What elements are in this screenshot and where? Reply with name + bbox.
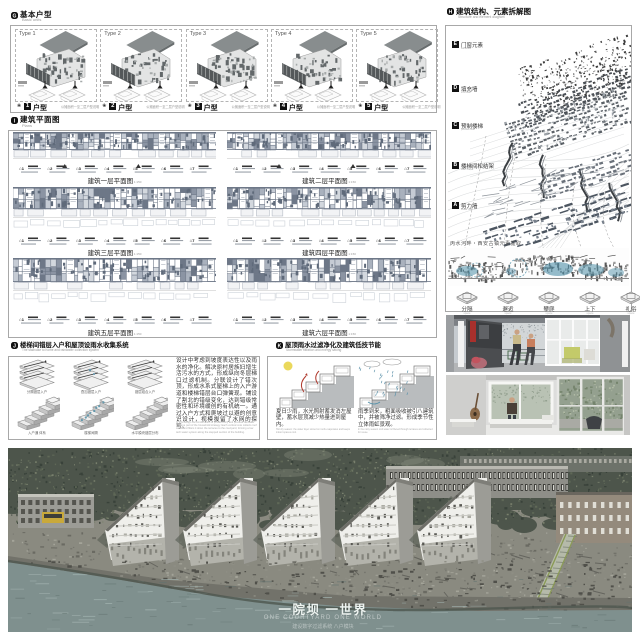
svg-text:G: G: [13, 13, 17, 19]
svg-text:⌂3: ⌂3: [76, 238, 82, 243]
svg-text:⌂1: ⌂1: [233, 238, 239, 243]
svg-text:⌂6: ⌂6: [161, 317, 167, 322]
svg-text:⌂3: ⌂3: [76, 317, 82, 322]
svg-text:H: H: [449, 9, 453, 15]
svg-text:⌂5: ⌂5: [133, 238, 139, 243]
svg-text:⌂6: ⌂6: [376, 166, 382, 171]
svg-text:⌂4: ⌂4: [319, 238, 325, 243]
svg-text:⌂5: ⌂5: [133, 317, 139, 322]
svg-text:⌂5: ⌂5: [347, 317, 353, 322]
svg-text:⌂2: ⌂2: [262, 317, 268, 322]
svg-text:J: J: [13, 343, 16, 349]
svg-text:⌂3: ⌂3: [290, 317, 296, 322]
svg-text:⌂2: ⌂2: [262, 238, 268, 243]
svg-text:⌂2: ⌂2: [262, 166, 268, 171]
svg-text:⌂6: ⌂6: [376, 317, 382, 322]
svg-text:K: K: [278, 343, 282, 349]
svg-text:⌂4: ⌂4: [319, 317, 325, 322]
svg-text:⌂4: ⌂4: [104, 238, 110, 243]
svg-text:⌂7: ⌂7: [404, 166, 410, 171]
svg-text:⌂7: ⌂7: [404, 317, 410, 322]
svg-text:⌂6: ⌂6: [376, 238, 382, 243]
svg-text:⌂3: ⌂3: [290, 166, 296, 171]
svg-text:⌂7: ⌂7: [404, 238, 410, 243]
svg-text:⌂6: ⌂6: [161, 238, 167, 243]
svg-text:⌂7: ⌂7: [190, 317, 196, 322]
svg-text:⌂2: ⌂2: [47, 317, 53, 322]
svg-text:⌂1: ⌂1: [19, 166, 25, 171]
svg-text:⌂4: ⌂4: [104, 317, 110, 322]
svg-text:⌂2: ⌂2: [47, 166, 53, 171]
svg-text:⌂7: ⌂7: [190, 238, 196, 243]
svg-text:⌂6: ⌂6: [161, 166, 167, 171]
svg-text:⌂4: ⌂4: [104, 166, 110, 171]
svg-text:⌂1: ⌂1: [19, 317, 25, 322]
svg-text:⌂1: ⌂1: [233, 317, 239, 322]
svg-text:⌂3: ⌂3: [290, 238, 296, 243]
svg-text:⌂5: ⌂5: [347, 238, 353, 243]
svg-text:⌂1: ⌂1: [19, 238, 25, 243]
svg-text:⌂3: ⌂3: [76, 166, 82, 171]
svg-text:⌂7: ⌂7: [190, 166, 196, 171]
svg-text:⌂4: ⌂4: [319, 166, 325, 171]
svg-text:⌂1: ⌂1: [233, 166, 239, 171]
svg-text:⌂2: ⌂2: [47, 238, 53, 243]
